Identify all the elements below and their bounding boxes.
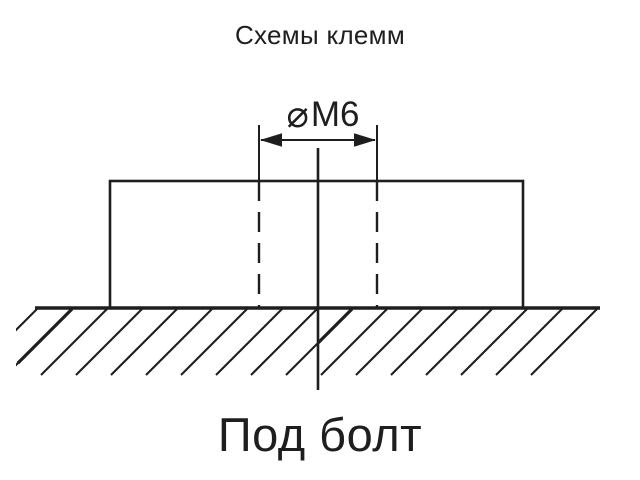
dimension-arrow-left-icon (260, 133, 282, 147)
terminal-block-outline (110, 181, 523, 308)
terminal-scheme-diagram: Схемы клемм ⌀M6 (0, 0, 640, 480)
dimension-arrow-right-icon (354, 133, 376, 147)
dimension-line (260, 133, 376, 147)
surface-hatching (0, 309, 597, 375)
diagram-caption: Под болт (0, 407, 640, 462)
